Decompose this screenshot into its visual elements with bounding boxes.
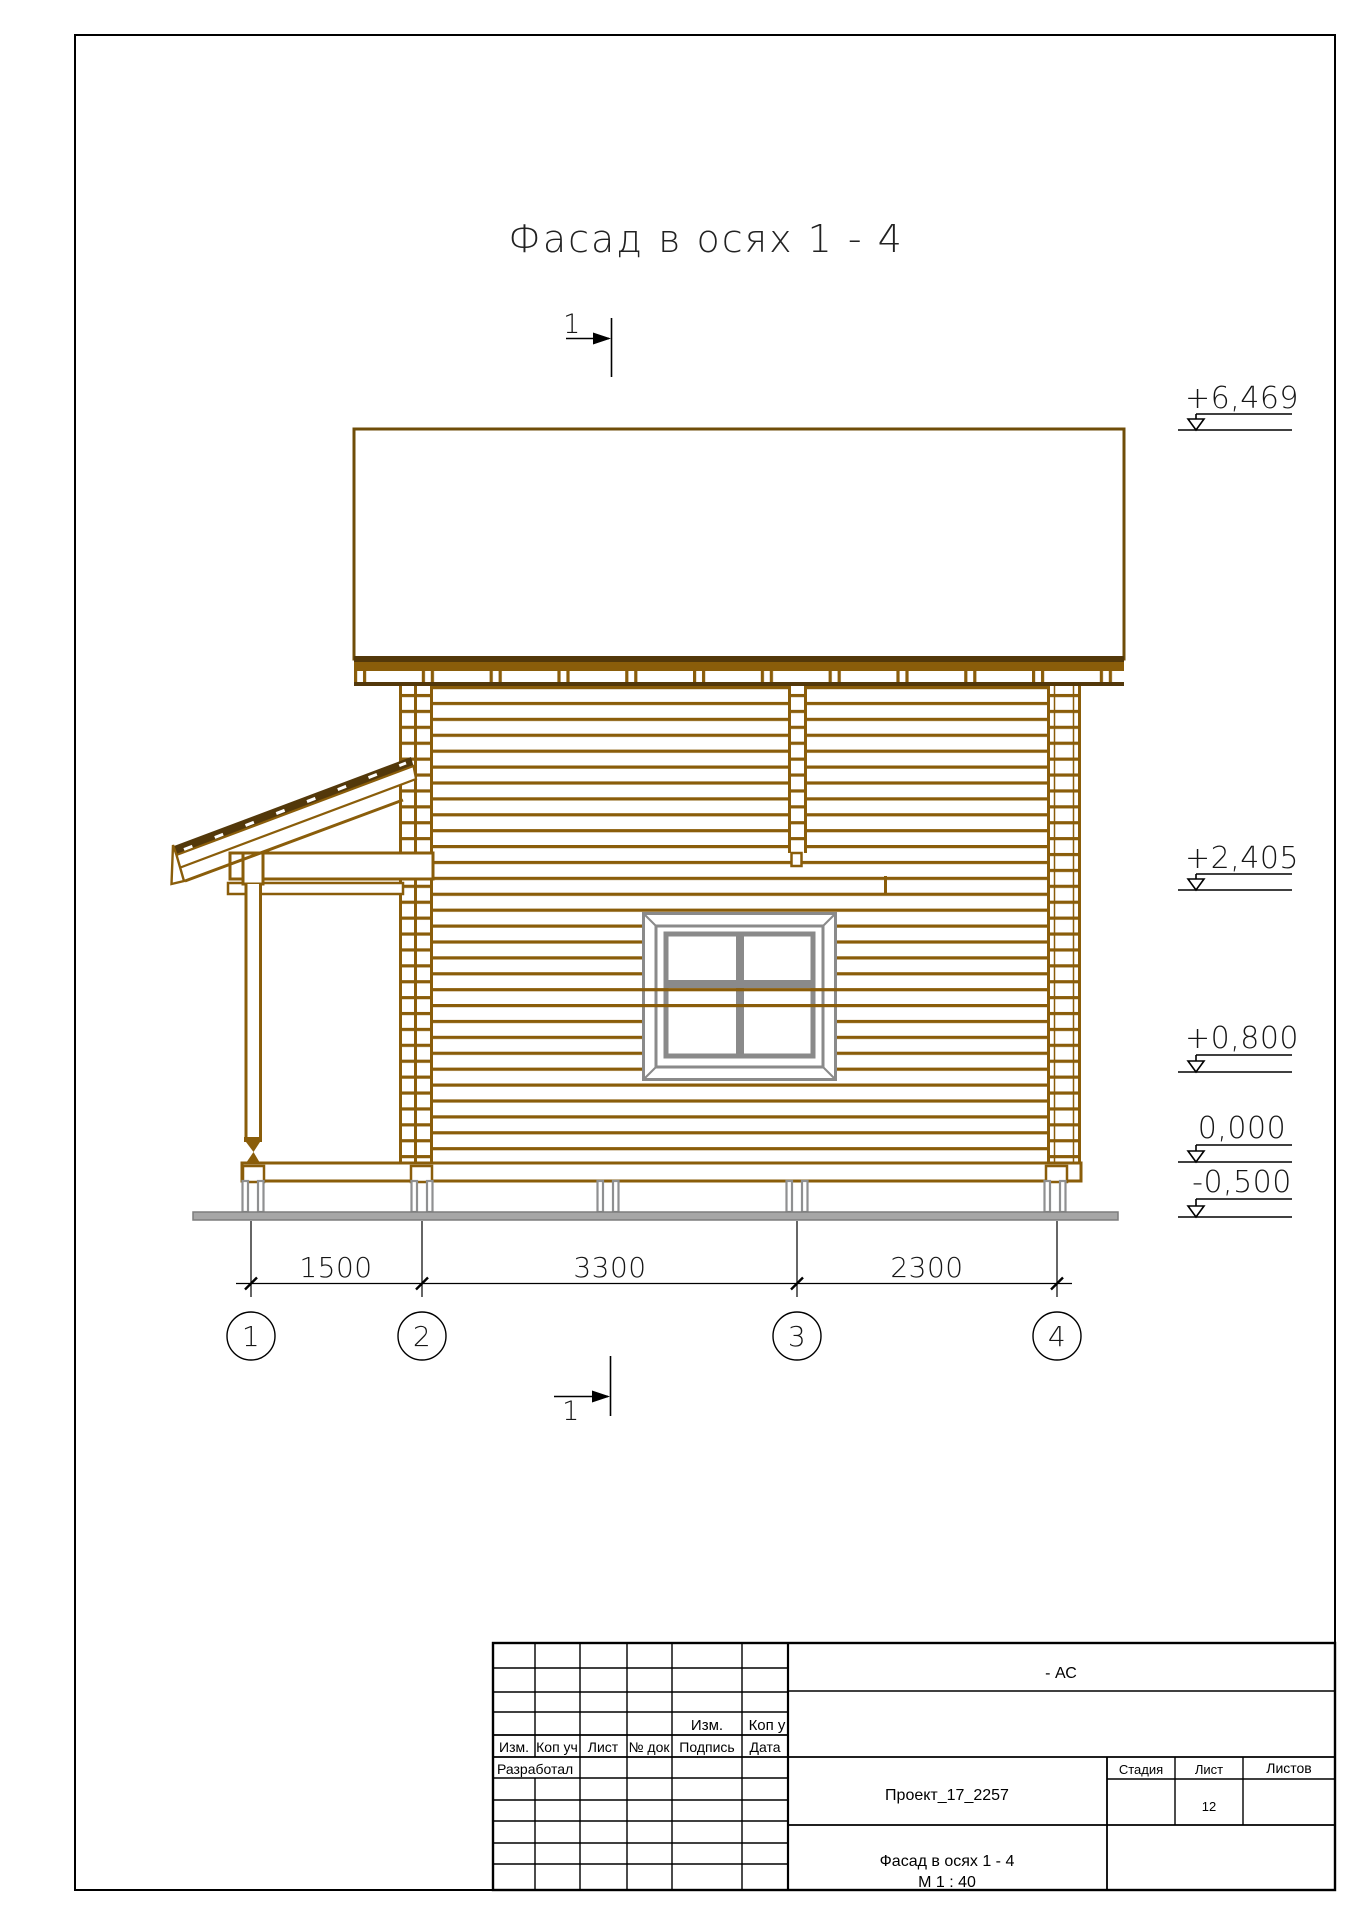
elevation-mark-ridge: +6,469: [1178, 381, 1299, 430]
sheets-label: Листов: [1266, 1760, 1312, 1776]
section-label-top: 1: [563, 309, 581, 340]
window-horizontal-muntin: [668, 980, 811, 988]
sheet-title: Фасад в осях 1 - 4: [880, 1853, 1015, 1870]
column-tail: [792, 853, 802, 866]
elevation-mark-porch-beam: +2,405: [1178, 841, 1299, 890]
header-ndok: № док: [629, 1739, 671, 1755]
upper-header-kop: Коп у: [749, 1717, 786, 1734]
elevation-value: -0,500: [1192, 1165, 1292, 1200]
elevation-triangle-icon: [1188, 1061, 1204, 1072]
fascia-band: [354, 662, 1124, 686]
foundation-post: [258, 1181, 264, 1212]
sheet-number: 12: [1202, 1799, 1216, 1814]
project-code: Проект_17_2257: [885, 1787, 1009, 1804]
porch: [172, 757, 434, 1163]
elevation-value: +2,405: [1185, 841, 1299, 876]
drawing-scale: М 1 : 40: [918, 1874, 976, 1891]
screw-jack-lower: [246, 1152, 260, 1163]
elevation-mark-sill: +0,800: [1178, 1021, 1299, 1072]
log-line-through-window: [642, 1004, 837, 1007]
stage-label: Стадия: [1119, 1762, 1163, 1777]
elevation-marks: +6,469 +2,405 +0,800 0,000: [1178, 381, 1299, 1217]
foundation-post: [802, 1181, 808, 1212]
corner-column-axis4: [1047, 686, 1081, 1163]
developer-label: Разработал: [497, 1761, 573, 1777]
foundation-post: [427, 1181, 433, 1212]
elevation-mark-baseplate: -0,500: [1178, 1165, 1292, 1217]
foundation-post: [613, 1181, 619, 1212]
window: [642, 912, 837, 1081]
screw-jack-plate: [244, 1137, 262, 1142]
upper-header-izm: Изм.: [691, 1717, 723, 1734]
interior-wall-column-axis3: [788, 686, 807, 866]
foundation-posts: [243, 1181, 1066, 1212]
foundation-post: [243, 1181, 249, 1212]
doc-code: - АС: [1045, 1665, 1077, 1682]
baseplate: [193, 1212, 1118, 1220]
elevation-value: +6,469: [1185, 381, 1299, 416]
axis-number-2: 2: [413, 1320, 431, 1353]
axis-number-1: 1: [242, 1320, 260, 1353]
dimension-text-3-4: 2300: [890, 1251, 963, 1284]
header-list: Лист: [588, 1739, 619, 1755]
fascia-board: [354, 662, 1124, 671]
header-podpis: Подпись: [679, 1739, 734, 1755]
header-izm: Изм.: [499, 1739, 529, 1755]
log-line-through-window: [642, 988, 837, 991]
header-kopuch: Коп уч: [536, 1739, 578, 1755]
page-title: Фасад в осях 1 - 4: [508, 217, 904, 261]
dimension-text-2-3: 3300: [573, 1251, 646, 1284]
section-arrowhead-icon: [592, 1391, 610, 1403]
bottom-frame-beam: [242, 1163, 1081, 1181]
sheet-label: Лист: [1195, 1762, 1223, 1777]
beam-pad: [411, 1166, 432, 1182]
drawing-sheet: Фасад в осях 1 - 4 1: [0, 0, 1358, 1920]
elevation-triangle-icon: [1188, 1151, 1204, 1162]
foundation-post: [598, 1181, 604, 1212]
header-data: Дата: [749, 1739, 780, 1755]
elevation-mark-zero: 0,000: [1178, 1111, 1292, 1162]
elevation-triangle-icon: [1188, 879, 1204, 890]
foundation: [193, 1163, 1118, 1220]
facade-drawing-canvas: Фасад в осях 1 - 4 1: [0, 0, 1358, 1920]
elevation-triangle-icon: [1188, 1206, 1204, 1217]
axis-bubbles: 1 2 3 4: [227, 1312, 1081, 1360]
screw-jack-upper: [246, 1142, 260, 1152]
section-mark-bottom: 1: [554, 1356, 611, 1427]
section-arrowhead-icon: [593, 333, 611, 345]
title-block: - АС Изм. Коп у Изм. Коп уч Лист № док П…: [493, 1643, 1335, 1891]
section-label-bottom: 1: [562, 1396, 580, 1427]
beam-pad: [243, 1166, 264, 1182]
roof-face: [354, 429, 1124, 659]
beam-pad: [1046, 1166, 1067, 1182]
column-rungs: [1047, 686, 1081, 1163]
axis-number-4: 4: [1048, 1320, 1066, 1353]
fascia-bottom-line: [354, 682, 1124, 686]
section-mark-top: 1: [563, 309, 611, 377]
window-vertical-muntin: [736, 936, 744, 1054]
elevation-value: 0,000: [1198, 1111, 1286, 1146]
corner-column-axis2: [399, 686, 433, 1163]
roof-drip-edge: [354, 656, 1124, 662]
foundation-post: [412, 1181, 418, 1212]
foundation-post: [1060, 1181, 1066, 1212]
rafter-tails: [354, 671, 1124, 682]
foundation-post: [787, 1181, 793, 1212]
axis-number-3: 3: [788, 1320, 806, 1353]
dimension-text-1-2: 1500: [299, 1251, 372, 1284]
foundation-post: [1045, 1181, 1051, 1212]
elevation-value: +0,800: [1185, 1021, 1299, 1056]
dimension-chain: 1500 3300 2300: [236, 1221, 1072, 1297]
elevation-triangle-icon: [1188, 419, 1204, 430]
